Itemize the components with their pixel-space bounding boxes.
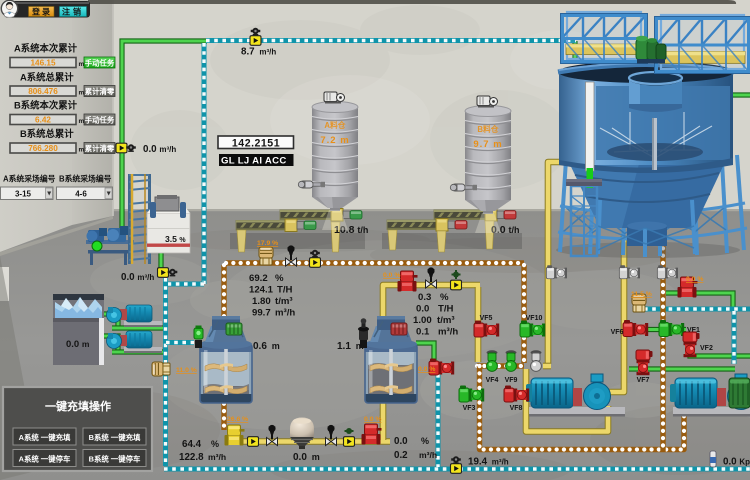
svg-text:m³/h: m³/h [419,450,437,460]
svg-text:手动任务: 手动任务 [85,59,115,68]
svg-text:VF2: VF2 [700,345,713,352]
svg-text:累计清零: 累计清零 [85,144,115,153]
svg-text:A系统总累计: A系统总累计 [20,72,74,83]
svg-text:9.7 m: 9.7 m [473,139,502,150]
svg-text:0.3: 0.3 [418,292,431,303]
svg-text:T/H: T/H [438,304,454,315]
svg-text:VF4: VF4 [486,377,499,384]
svg-text:0.6 m: 0.6 m [253,341,280,352]
svg-text:4-6: 4-6 [75,190,87,199]
svg-text:B料仓: B料仓 [477,124,498,134]
svg-text:累计清零: 累计清零 [85,87,115,96]
svg-text:VF8: VF8 [510,405,523,412]
svg-text:%: % [211,439,219,449]
svg-text:146.15: 146.15 [30,59,55,68]
svg-text:0.0 %: 0.0 % [418,366,435,373]
svg-text:0.0 m: 0.0 m [293,452,320,463]
svg-text:A系统 一键充填: A系统 一键充填 [19,433,71,442]
svg-text:%: % [275,273,284,284]
svg-text:69.2: 69.2 [249,273,268,284]
svg-text:142.2151: 142.2151 [232,137,280,149]
svg-text:0.0 Kpa: 0.0 Kpa [723,457,750,468]
svg-text:806.476: 806.476 [28,87,58,96]
svg-text:A料仓: A料仓 [324,120,345,130]
svg-text:7.2 m: 7.2 m [320,135,349,146]
svg-text:B系统 一键停车: B系统 一键停车 [89,455,141,464]
svg-text:登录: 登录 [31,7,52,17]
svg-text:B系统采场编号: B系统采场编号 [59,174,112,184]
svg-text:GL LJ AI ACC: GL LJ AI ACC [221,156,287,167]
svg-text:%: % [421,436,429,446]
svg-text:6.42: 6.42 [35,116,51,125]
svg-text:17.9 %: 17.9 % [257,240,278,247]
svg-text:8.7 m³/h: 8.7 m³/h [241,47,276,58]
svg-text:1.80: 1.80 [252,296,271,307]
svg-text:124.1: 124.1 [249,285,274,296]
svg-text:0.0 %: 0.0 % [383,272,400,279]
svg-text:注销: 注销 [62,7,84,17]
svg-text:VF5: VF5 [480,315,493,322]
svg-text:A系统 一键停车: A系统 一键停车 [19,455,71,464]
svg-text:B系统本次累计: B系统本次累计 [14,100,78,111]
svg-text:VF6: VF6 [611,329,624,336]
svg-text:19.4 m³/h: 19.4 m³/h [468,457,509,468]
svg-text:26.6 %: 26.6 % [227,416,248,423]
svg-text:A系统采场编号: A系统采场编号 [3,174,56,184]
svg-text:11.0 %: 11.0 % [176,367,197,374]
svg-text:VF7: VF7 [637,377,650,384]
svg-text:0.0 %: 0.0 % [686,276,703,283]
svg-text:766.280: 766.280 [28,144,58,153]
svg-text:11.5 %: 11.5 % [631,291,652,298]
svg-text:0.1: 0.1 [416,327,430,338]
svg-text:64.4: 64.4 [182,439,202,450]
svg-text:m³/h: m³/h [438,327,458,338]
svg-text:m³/h: m³/h [275,308,295,319]
svg-text:99.7: 99.7 [252,308,271,319]
svg-text:T/H: T/H [277,285,293,296]
svg-text:3-15: 3-15 [15,190,32,199]
svg-text:一键充填操作: 一键充填操作 [45,399,111,413]
svg-text:1.1 m: 1.1 m [337,341,364,352]
svg-text:0.0: 0.0 [394,436,408,447]
svg-text:%: % [440,292,449,303]
svg-text:A系统本次累计: A系统本次累计 [14,43,78,54]
svg-text:0.0 m: 0.0 m [66,339,90,350]
svg-text:VF9: VF9 [505,377,518,384]
svg-text:1.00: 1.00 [413,315,432,326]
svg-text:0.0 m³/h: 0.0 m³/h [143,144,176,155]
svg-text:122.8: 122.8 [179,452,204,463]
svg-text:t/m³: t/m³ [437,315,455,326]
svg-text:0.0 %: 0.0 % [364,416,381,423]
svg-text:B系统总累计: B系统总累计 [20,128,74,139]
svg-text:VF3: VF3 [463,405,476,412]
svg-text:VF10: VF10 [526,315,543,322]
svg-text:m³/h: m³/h [208,452,226,462]
svg-text:t/m³: t/m³ [275,296,293,307]
svg-text:0.2: 0.2 [394,450,408,461]
svg-text:0.0: 0.0 [416,304,429,315]
svg-text:手动任务: 手动任务 [85,116,115,125]
svg-text:B系统 一键充填: B系统 一键充填 [89,433,141,442]
svg-text:0.0 m³/h: 0.0 m³/h [121,272,154,283]
